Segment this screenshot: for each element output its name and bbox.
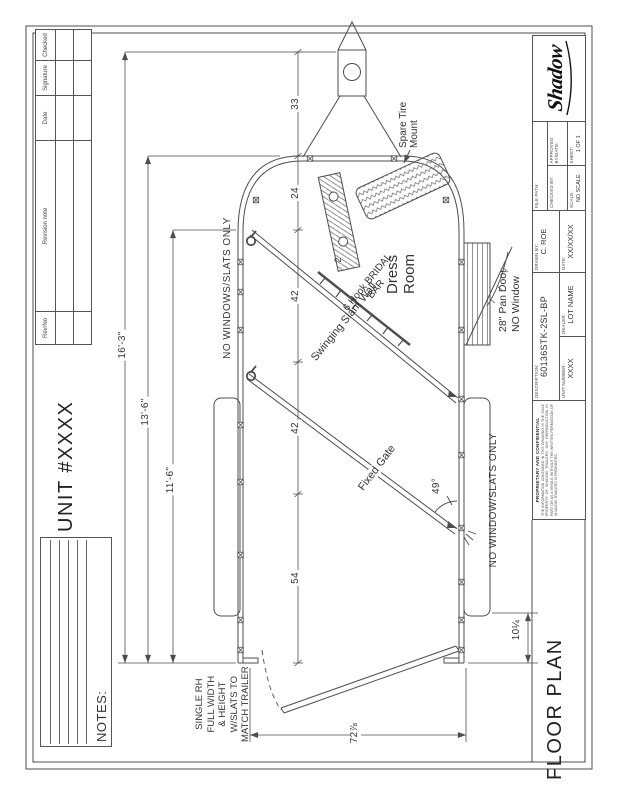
dimension-lines [125, 52, 528, 735]
proprietary-title: PROPRIETARY AND CONFIDENTIAL [535, 401, 540, 519]
rev-col-checked: Checked [36, 30, 56, 61]
notes-area: NOTES: [40, 537, 110, 745]
scale-cell: SCALE: NO SCALE [567, 167, 585, 211]
swing-arc [262, 650, 281, 710]
fixed-gate [247, 366, 476, 545]
tongue-coupler [303, 22, 401, 157]
approved-cell: APPROVED BY/DATE: [547, 122, 567, 167]
rev-col-revno: Rev/No [36, 312, 56, 345]
sheet-value: 1 OF 1 [575, 122, 583, 166]
checked-by-label: CHECKED BY: [548, 167, 554, 211]
description-cell: DESCRIPTION: 60136STK-2SL-BP [533, 273, 559, 400]
sheet-label: SHEET: [568, 122, 574, 166]
inner-frame [33, 33, 585, 762]
dim-33: 33 [291, 96, 302, 112]
dim-interior: 11'-6" [166, 465, 177, 496]
rev-col-signature: Signature [36, 61, 56, 96]
revision-header-row: Rev/No Revision note Date Signature Chec… [36, 30, 56, 345]
drawn-by-value: C. ROE [540, 211, 548, 272]
date-label: DATE: [560, 211, 566, 272]
notes-label: NOTES: [94, 691, 109, 742]
rev-col-date: Date [36, 96, 56, 141]
spare-tire [354, 151, 452, 221]
revision-empty-row [56, 30, 74, 345]
no-windows-left-label: NO WINDOWS/SLATS ONLY [223, 217, 234, 359]
dim-overall: 16'-3" [118, 329, 129, 360]
dim-rear-width: 72⅞ [350, 721, 361, 745]
right-fender [464, 398, 490, 616]
date-cell: DATE: XX/XX/XX [559, 211, 586, 272]
title-block: PROPRIETARY AND CONFIDENTIAL THE INFORMA… [532, 35, 586, 520]
proprietary-text: THE INFORMATION CONTAINED IN THIS DRAWIN… [540, 401, 559, 519]
rear-gate-note: SINGLE RH FULL WIDTH & HEIGHT W/SLATS TO… [194, 666, 252, 742]
rear-gate-open [262, 646, 459, 713]
revision-empty-row [74, 30, 92, 345]
rev-col-note: Revision note [36, 141, 56, 312]
notes-rule [50, 540, 51, 744]
unit-number-value: XXXX [567, 337, 575, 400]
dealer-cell: DEALER: LOT NAME [559, 273, 585, 337]
drawn-by-cell: DRAWN BY: C. ROE [533, 211, 559, 272]
latch-arrow-icon [447, 521, 457, 528]
sheet-cell: SHEET: 1 OF 1 [567, 122, 585, 167]
notes-rule [77, 540, 78, 744]
approved-label: APPROVED BY/DATE: [548, 122, 559, 166]
angle-arc [435, 501, 457, 512]
step-rack [318, 173, 359, 271]
no-window-right-label: NO WINDOW/SLATS ONLY [489, 433, 500, 568]
dim-54: 54 [291, 570, 302, 586]
pan-door-label: 28" Pan Door NO Window [497, 269, 522, 332]
rear-corner-left [238, 658, 258, 663]
unit-title: UNIT #XXXX [56, 401, 78, 532]
shadow-logo: Shadow [545, 44, 565, 113]
proprietary-cell: PROPRIETARY AND CONFIDENTIAL THE INFORMA… [533, 401, 585, 519]
spare-tire-label: Spare Tire Mount [399, 102, 421, 148]
drawing-sheet: 33 24 42 42 54 16'-3" 13'-6" 11'-6" 72⅞ … [0, 0, 618, 800]
notes-rule [68, 540, 69, 744]
file-path-cell: FILE PATH: [533, 122, 547, 210]
hinge-icon [247, 237, 255, 245]
floor-plan-title: FLOOR PLAN [545, 638, 567, 780]
scale-label: SCALE: [568, 167, 574, 211]
dim-rear-offset: 10¼ [512, 618, 523, 642]
dim-body: 13'-6" [141, 396, 152, 427]
dealer-value: LOT NAME [567, 273, 575, 336]
notes-rule [86, 540, 87, 744]
dim-24: 24 [291, 185, 302, 201]
scale-value: NO SCALE [575, 167, 583, 211]
revision-table: Rev/No Revision note Date Signature Chec… [35, 35, 91, 345]
qty-label: 2 [334, 257, 344, 262]
dim-gate-angle: 49° [432, 476, 443, 496]
latch-burst-icon [464, 531, 476, 545]
file-path-label: FILE PATH: [533, 122, 539, 210]
description-value: 60136STK-2SL-BP [540, 273, 548, 400]
date-value: XX/XX/XX [567, 211, 575, 272]
left-fender [214, 398, 240, 616]
dim-42b: 42 [291, 420, 302, 436]
dim-42a: 42 [291, 288, 302, 304]
logo-cell: Shadow [533, 36, 585, 122]
notes-rule [59, 540, 60, 744]
rear-corner-right [444, 658, 464, 663]
checked-by-cell: CHECKED BY: [547, 167, 567, 211]
unit-number-cell: UNIT NUMBER: XXXX [559, 337, 585, 400]
latch-arrow-icon [448, 390, 457, 397]
